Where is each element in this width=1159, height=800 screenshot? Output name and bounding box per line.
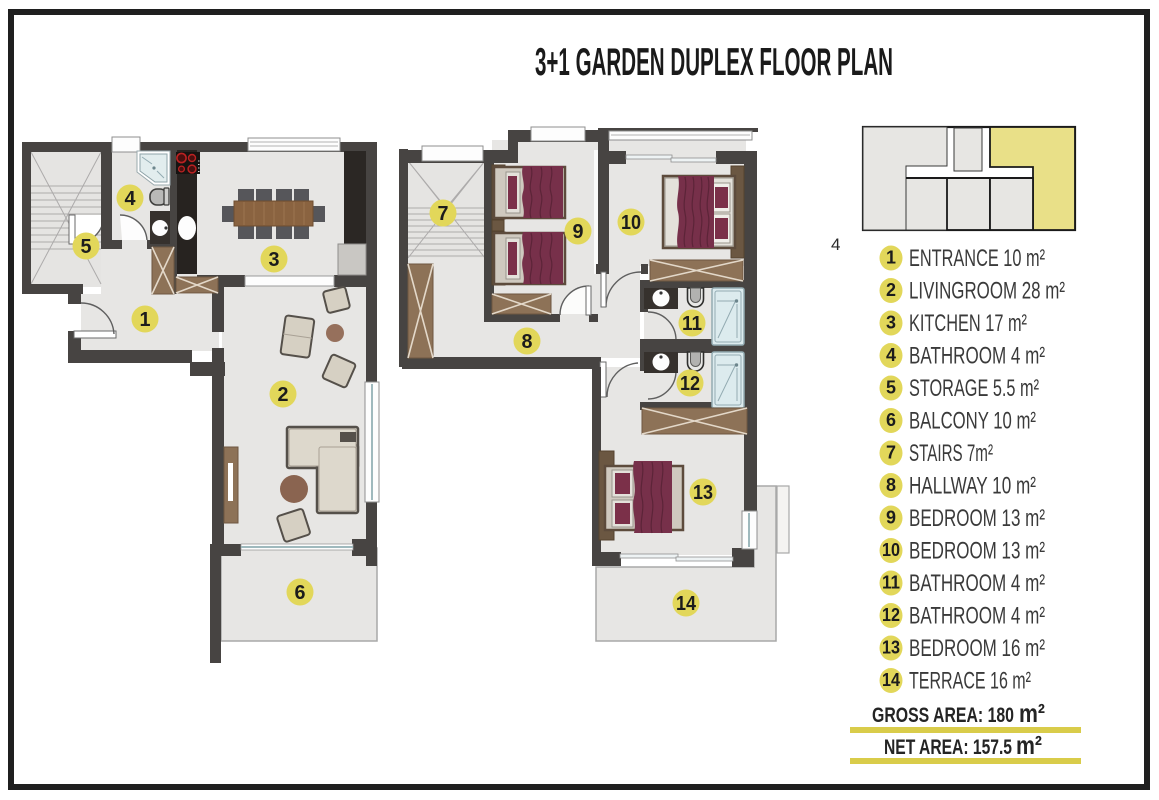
svg-text:BEDROOM 13 m²: BEDROOM 13 m²: [909, 505, 1045, 532]
svg-text:m²: m²: [1019, 698, 1045, 728]
svg-text:2: 2: [886, 280, 896, 300]
svg-text:HALLWAY 10 m²: HALLWAY 10 m²: [909, 473, 1036, 500]
svg-text:7: 7: [438, 203, 449, 225]
svg-text:KITCHEN 17 m²: KITCHEN 17 m²: [909, 310, 1027, 337]
svg-text:1: 1: [886, 248, 896, 268]
svg-text:13: 13: [882, 638, 900, 658]
svg-text:14: 14: [882, 670, 900, 690]
svg-text:5: 5: [81, 236, 92, 258]
svg-text:3: 3: [269, 249, 280, 271]
svg-text:2: 2: [278, 384, 289, 406]
svg-text:BATHROOM 4 m²: BATHROOM 4 m²: [909, 570, 1045, 597]
svg-text:5: 5: [886, 378, 896, 398]
svg-text:1: 1: [140, 309, 151, 331]
svg-text:3: 3: [886, 313, 896, 333]
svg-text:13: 13: [693, 482, 713, 504]
svg-text:BATHROOM 4 m²: BATHROOM 4 m²: [909, 343, 1045, 370]
svg-text:m²: m²: [1016, 730, 1042, 760]
svg-text:11: 11: [882, 573, 900, 593]
svg-text:BALCONY 10 m²: BALCONY 10 m²: [909, 408, 1036, 435]
svg-text:BEDROOM 16 m²: BEDROOM 16 m²: [909, 635, 1045, 662]
svg-text:11: 11: [682, 313, 702, 335]
svg-text:NET AREA: 157.5: NET AREA: 157.5: [884, 736, 1012, 759]
svg-text:GROSS AREA: 180: GROSS AREA: 180: [872, 704, 1014, 727]
svg-text:9: 9: [886, 508, 896, 528]
svg-text:12: 12: [882, 605, 900, 625]
svg-text:STORAGE 5.5 m²: STORAGE 5.5 m²: [909, 375, 1039, 402]
svg-text:8: 8: [886, 475, 896, 495]
svg-text:BEDROOM 13 m²: BEDROOM 13 m²: [909, 538, 1045, 565]
svg-text:4: 4: [886, 345, 896, 365]
svg-text:10: 10: [882, 540, 900, 560]
svg-text:10: 10: [621, 212, 641, 234]
svg-text:12: 12: [680, 373, 700, 395]
svg-text:6: 6: [886, 410, 896, 430]
svg-text:4: 4: [831, 235, 840, 254]
svg-text:BATHROOM 4 m²: BATHROOM 4 m²: [909, 603, 1045, 630]
svg-text:4: 4: [125, 188, 137, 210]
svg-text:9: 9: [573, 221, 584, 243]
svg-text:6: 6: [295, 582, 306, 604]
svg-text:3+1 GARDEN DUPLEX FLOOR PLAN: 3+1 GARDEN DUPLEX FLOOR PLAN: [535, 41, 893, 84]
svg-text:STAIRS 7m²: STAIRS 7m²: [909, 440, 993, 467]
svg-text:14: 14: [676, 593, 697, 615]
svg-text:7: 7: [886, 443, 896, 463]
svg-text:LIVINGROOM 28 m²: LIVINGROOM 28 m²: [909, 278, 1065, 305]
svg-text:ENTRANCE 10 m²: ENTRANCE 10 m²: [909, 245, 1045, 272]
svg-text:8: 8: [522, 331, 533, 353]
svg-text:TERRACE 16 m²: TERRACE 16 m²: [909, 668, 1031, 695]
